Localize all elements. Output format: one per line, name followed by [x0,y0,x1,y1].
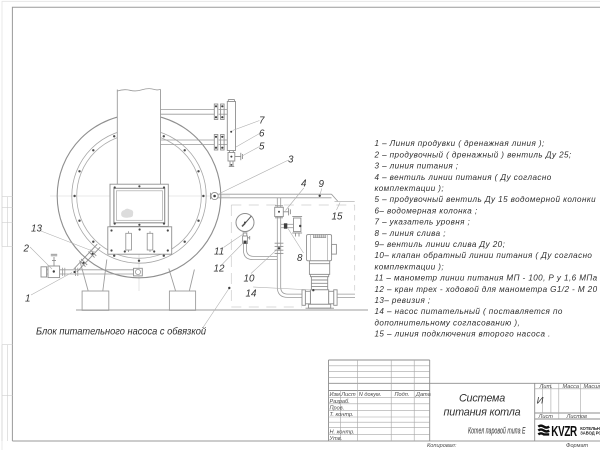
svg-text:Н. контр.: Н. контр. [330,429,355,435]
svg-text:1: 1 [25,294,30,305]
svg-text:N докум.: N докум. [359,392,382,398]
svg-text:Блок питательного насоса с обв: Блок питательного насоса с обвязкой [36,326,206,338]
svg-text:13: 13 [31,224,42,235]
svg-text:12 – кран трех - ходовой дл: 12 – кран трех - ходовой для манометра G… [375,285,598,294]
svg-text:11: 11 [214,247,224,258]
svg-text:питания котла: питания котла [444,406,521,418]
svg-text:12: 12 [214,264,225,275]
svg-text:7: 7 [259,116,265,127]
svg-text:5 – продувочный вентиль Ду: 5 – продувочный вентиль Ду 15 водомерной… [375,195,597,204]
svg-text:8: 8 [297,253,303,264]
svg-text:6– водомерная колонка ;: 6– водомерная колонка ; [375,206,478,215]
svg-text:KVZR: KVZR [551,424,577,440]
svg-text:10– клапан обратный линии: 10– клапан обратный линии питания ( Ду с… [375,251,593,260]
svg-text:2: 2 [23,244,30,255]
svg-text:Копировал:: Копировал: [427,443,457,449]
svg-text:Масса: Масса [563,384,580,390]
svg-text:Масшт: Масшт [584,384,600,390]
svg-text:2 – продувочный ( дренажный: 2 – продувочный ( дренажный ) вентиль Ду… [374,150,572,159]
svg-text:9: 9 [319,179,325,190]
svg-text:Дата: Дата [415,392,431,398]
svg-text:11 – манометр линии питания: 11 – манометр линии питания МП - 100, Р … [375,274,598,283]
svg-text:Листов: Листов [566,414,587,420]
svg-text:Система: Система [459,393,505,405]
svg-text:14: 14 [246,289,257,300]
svg-text:Котел паровой типа Е: Котел паровой типа Е [468,425,526,435]
svg-text:14 – насос питательный ( по: 14 – насос питательный ( поставляется по [375,307,563,316]
svg-text:4: 4 [301,179,307,190]
svg-text:15 – линия подключения втор: 15 – линия подключения второго насоса . [375,330,551,339]
svg-text:И: И [537,395,544,406]
svg-text:3: 3 [288,155,294,166]
svg-text:дополнительному согласованию: дополнительному согласованию ), [375,318,521,327]
svg-text:13– ревизия ;: 13– ревизия ; [375,296,431,305]
svg-text:ЗАВОД РОСС: ЗАВОД РОСС [580,431,600,436]
svg-text:Формат: Формат [566,443,589,449]
svg-text:3 – линия питания ;: 3 – линия питания ; [375,162,459,171]
svg-text:6: 6 [259,129,265,140]
svg-text:15: 15 [332,212,343,223]
svg-text:9– вентиль линии слива Ду: 9– вентиль линии слива Ду 20; [375,240,506,249]
svg-text:10: 10 [244,274,255,285]
svg-text:4 – вентиль линии питания: 4 – вентиль линии питания ( Ду согласно [375,173,552,182]
svg-text:комплектации );: комплектации ); [375,184,445,193]
svg-text:Изм.: Изм. [330,392,342,398]
svg-text:7 – указатель уровня ;: 7 – указатель уровня ; [375,218,471,227]
svg-text:Лист: Лист [340,392,356,398]
svg-text:Разраб.: Разраб. [330,399,350,405]
svg-text:комплектации );: комплектации ); [375,262,445,271]
svg-text:Лист: Лист [538,414,554,420]
svg-text:Т. контр.: Т. контр. [330,412,354,418]
svg-text:8 – линия слива ;: 8 – линия слива ; [375,229,446,238]
svg-text:Лит.: Лит. [539,384,553,390]
svg-text:Утв.: Утв. [329,436,343,442]
svg-text:1 – Линия продувки ( дренаж: 1 – Линия продувки ( дренажная линия ); [375,139,545,148]
svg-text:5: 5 [259,142,265,153]
svg-text:Подп.: Подп. [395,392,410,398]
svg-text:Пров.: Пров. [330,405,345,411]
